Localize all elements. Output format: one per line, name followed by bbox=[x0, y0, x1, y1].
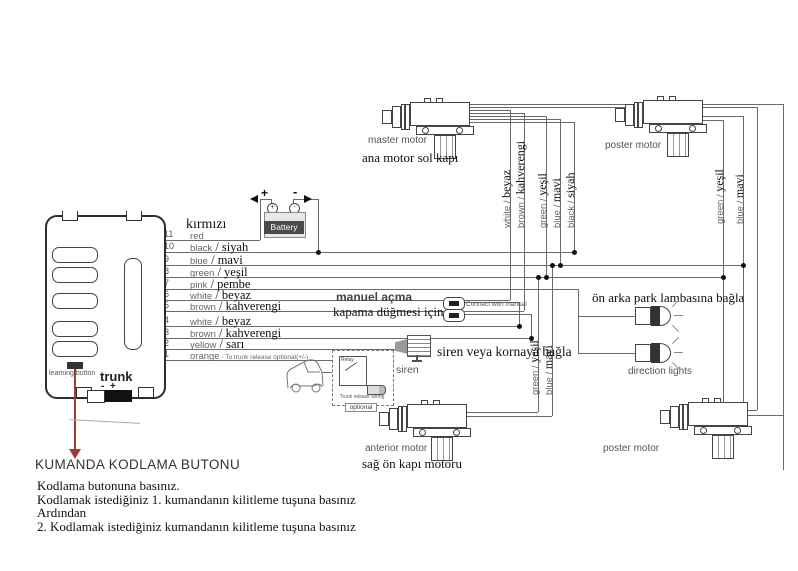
master-motor-label-en: master motor bbox=[368, 135, 427, 146]
wire-segment bbox=[470, 107, 757, 108]
junction-dot bbox=[550, 263, 555, 268]
control-unit-slot bbox=[52, 267, 98, 283]
siren-label: siren bbox=[396, 364, 419, 376]
instruction-line: Kodlama butonuna basınız. bbox=[37, 479, 457, 493]
learning-button-wire bbox=[74, 369, 76, 449]
junction-dot bbox=[544, 275, 549, 280]
manual-note-line1: manuel açma bbox=[336, 290, 412, 304]
junction-dot bbox=[741, 263, 746, 268]
anterior-motor-label-en: anterior motor bbox=[365, 443, 427, 454]
battery-minus-sign: - bbox=[293, 184, 297, 199]
connect-with-manual-label: Connect with manual bbox=[466, 301, 527, 308]
wire-segment bbox=[467, 416, 552, 417]
wire-segment bbox=[260, 199, 261, 240]
wire-segment bbox=[743, 116, 744, 402]
wire-segment bbox=[531, 314, 532, 338]
wire-segment bbox=[470, 116, 546, 117]
control-unit-notch bbox=[62, 211, 78, 221]
battery-label: Battery bbox=[264, 221, 304, 234]
park-lamps-note: ön arka park lambasına bağla bbox=[592, 290, 744, 306]
manual-plug-icon bbox=[443, 309, 465, 322]
junction-dot bbox=[536, 275, 541, 280]
vertical-wire-label: black / siyah bbox=[561, 173, 579, 228]
direction-light-icon bbox=[635, 343, 685, 365]
poster-motor-bottom-label: poster motor bbox=[603, 443, 659, 454]
trunk-connector-white bbox=[87, 390, 105, 403]
siren-body-icon bbox=[407, 335, 431, 357]
control-unit-slot bbox=[52, 321, 98, 337]
junction-dot bbox=[316, 250, 321, 255]
battery-arrow-right-icon bbox=[304, 195, 312, 203]
instruction-line: Ardından bbox=[37, 506, 457, 520]
poster-motor-top-label: poster motor bbox=[605, 140, 661, 151]
trunk-release-wiring-label: Trunk release wiring bbox=[333, 394, 391, 400]
anterior-motor-label-tr: sağ ön kapı motoru bbox=[362, 456, 462, 472]
wire-segment bbox=[318, 199, 319, 252]
instruction-line: 2. Kodlamak istediğiniz kumandanın kilit… bbox=[37, 520, 457, 534]
siren-connect-note: siren veya kornaya bağla bbox=[437, 344, 572, 360]
wire-segment bbox=[465, 314, 531, 315]
wire-segment bbox=[578, 353, 635, 354]
wire-header-kirmizi: kırmızı bbox=[186, 217, 226, 233]
wire-row-line bbox=[163, 265, 743, 266]
control-unit-vertical-slot bbox=[124, 258, 142, 350]
junction-dot bbox=[721, 275, 726, 280]
wire-segment bbox=[578, 316, 635, 317]
direction-lights-label: direction lights bbox=[628, 366, 692, 377]
wire-segment bbox=[470, 122, 574, 123]
optional-label: optional bbox=[345, 403, 377, 412]
learning-button[interactable] bbox=[67, 362, 83, 369]
instructions-heading: KUMANDA KODLAMA BUTONU bbox=[35, 457, 240, 472]
junction-dot bbox=[572, 250, 577, 255]
master-motor-label-tr: ana motor sol kapı bbox=[362, 150, 458, 166]
wiring-diagram: 11red10black / siyah9blue / mavi8green /… bbox=[0, 0, 798, 571]
relay-label: Relay bbox=[341, 357, 354, 363]
instructions-body: Kodlama butonuna basınız.Kodlamak istedi… bbox=[37, 479, 457, 533]
vertical-wire-label: brown / kahverengi bbox=[511, 141, 529, 228]
wire-segment bbox=[470, 113, 524, 114]
direction-light-icon bbox=[635, 306, 685, 328]
vertical-wire-label: green / yeşil bbox=[710, 169, 728, 224]
vertical-wire-label: blue / mavi bbox=[730, 174, 748, 224]
control-unit-notch bbox=[138, 387, 154, 397]
wire-segment bbox=[467, 412, 538, 413]
poster-motor-bottom-icon bbox=[660, 400, 756, 462]
trunk-connector-black bbox=[105, 390, 132, 402]
junction-dot bbox=[517, 324, 522, 329]
control-unit-notch bbox=[126, 211, 142, 221]
manual-note-line2: kapama düğmesi için bbox=[333, 304, 443, 320]
car-trunk-sketch bbox=[284, 356, 328, 396]
anterior-motor-icon bbox=[379, 402, 475, 464]
wire-segment bbox=[757, 107, 758, 410]
control-unit-slot bbox=[52, 247, 98, 263]
wire-tick bbox=[70, 419, 140, 424]
battery-arrow-left-icon bbox=[250, 195, 258, 203]
learning-button-label: learning button bbox=[49, 370, 95, 377]
control-unit-slot bbox=[52, 341, 98, 357]
battery-plus-sign: + bbox=[261, 186, 268, 200]
control-unit-slot bbox=[52, 293, 98, 309]
wire-segment bbox=[783, 104, 784, 470]
siren-foot bbox=[412, 360, 422, 362]
junction-dot bbox=[558, 263, 563, 268]
wire-segment bbox=[578, 289, 579, 353]
wire-segment bbox=[723, 120, 724, 402]
instruction-line: Kodlamak istediğiniz 1. kumandanın kilit… bbox=[37, 493, 457, 507]
